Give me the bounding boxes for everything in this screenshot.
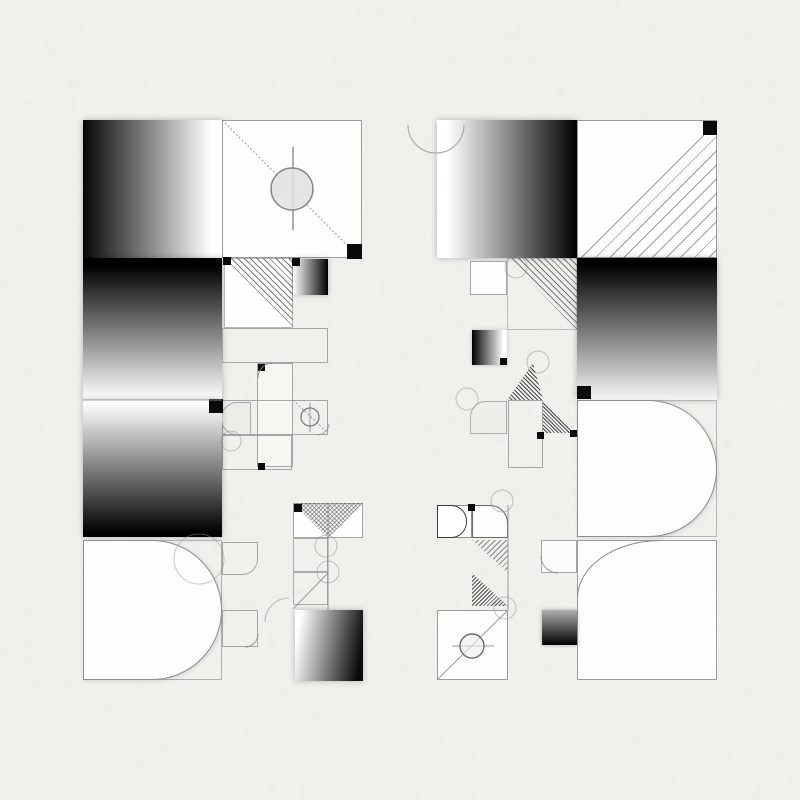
corner-marker-6 — [258, 463, 265, 470]
corner-marker-10 — [500, 358, 507, 365]
right-compass-square — [437, 610, 508, 680]
corner-marker-2 — [223, 257, 231, 265]
corner-marker-1 — [347, 244, 362, 259]
left-gradient-square-lower-mid — [83, 400, 222, 537]
left-wide-outline-rect — [222, 328, 328, 363]
right-rounded-corner-tile — [541, 540, 577, 573]
corner-marker-12 — [570, 430, 577, 437]
right-gradient-square-mid — [577, 258, 717, 400]
left-d-shape — [83, 540, 222, 680]
artwork-canvas — [0, 0, 800, 800]
corner-marker-13 — [468, 504, 475, 511]
right-small-outline-square — [470, 261, 507, 295]
right-hatch-triangle-b — [543, 401, 574, 433]
right-gradient-square-top — [437, 120, 577, 258]
right-capsule-tile — [470, 401, 507, 434]
right-mini-hatch-b — [472, 573, 508, 606]
corner-marker-8 — [703, 121, 717, 135]
left-strip-outline-a — [293, 538, 328, 572]
right-small-gradient-tile — [542, 610, 577, 645]
left-gradient-corner-arc — [265, 598, 289, 622]
right-d-shape — [577, 400, 717, 537]
left-gradient-square-upper-mid — [83, 258, 222, 400]
left-gradient-square-bottom — [295, 610, 363, 681]
left-capsule-tile — [221, 402, 251, 435]
left-lower-outline-rect — [222, 435, 292, 470]
right-mini-hatch-a — [472, 540, 508, 573]
left-outline-square-top — [222, 120, 362, 258]
corner-marker-7 — [294, 504, 302, 512]
left-small-outline-square — [222, 610, 258, 647]
right-rounded-tr-tile — [472, 505, 508, 538]
left-rounded-tile — [222, 542, 258, 575]
corner-marker-11 — [537, 432, 544, 439]
left-strip-outline-b — [293, 572, 328, 605]
corner-marker-3 — [292, 258, 300, 266]
left-gradient-square-top — [83, 120, 222, 258]
corner-marker-4 — [209, 399, 223, 413]
corner-marker-9 — [577, 386, 591, 399]
right-hatch-triangle-small — [507, 363, 543, 400]
right-mini-d-tile — [437, 505, 467, 538]
corner-marker-5 — [258, 364, 265, 371]
